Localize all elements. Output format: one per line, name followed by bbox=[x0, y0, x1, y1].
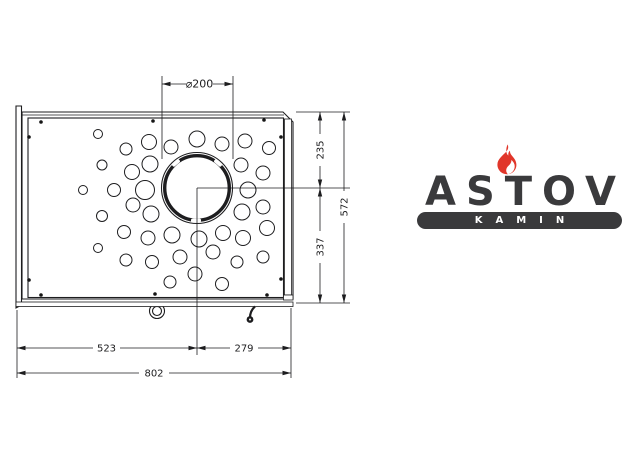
technical-drawing: ⌀200 235 337 572 bbox=[0, 0, 400, 460]
astov-logo: ASTOV KAMIN bbox=[415, 140, 624, 240]
bottom-band bbox=[16, 302, 293, 307]
logo-brand-text: ASTOV bbox=[415, 171, 624, 213]
right-bar-foot bbox=[284, 295, 294, 300]
dim-label-diameter: ⌀200 bbox=[186, 78, 214, 91]
dim-label-802: 802 bbox=[144, 369, 163, 380]
dim-label-279: 279 bbox=[234, 344, 253, 355]
dim-label-523: 523 bbox=[97, 344, 116, 355]
left-flange bbox=[16, 106, 22, 308]
dim-label-235: 235 bbox=[316, 140, 327, 159]
dim-label-337: 337 bbox=[316, 237, 327, 256]
dim-label-572: 572 bbox=[340, 197, 351, 216]
dim-right-side: 235 337 572 bbox=[296, 112, 351, 303]
logo-kamin-bar: KAMIN bbox=[417, 212, 622, 229]
page: ⌀200 235 337 572 bbox=[0, 0, 624, 460]
logo-sub-text: KAMIN bbox=[462, 215, 578, 226]
right-bar bbox=[285, 119, 292, 295]
latch-lever bbox=[247, 307, 255, 323]
